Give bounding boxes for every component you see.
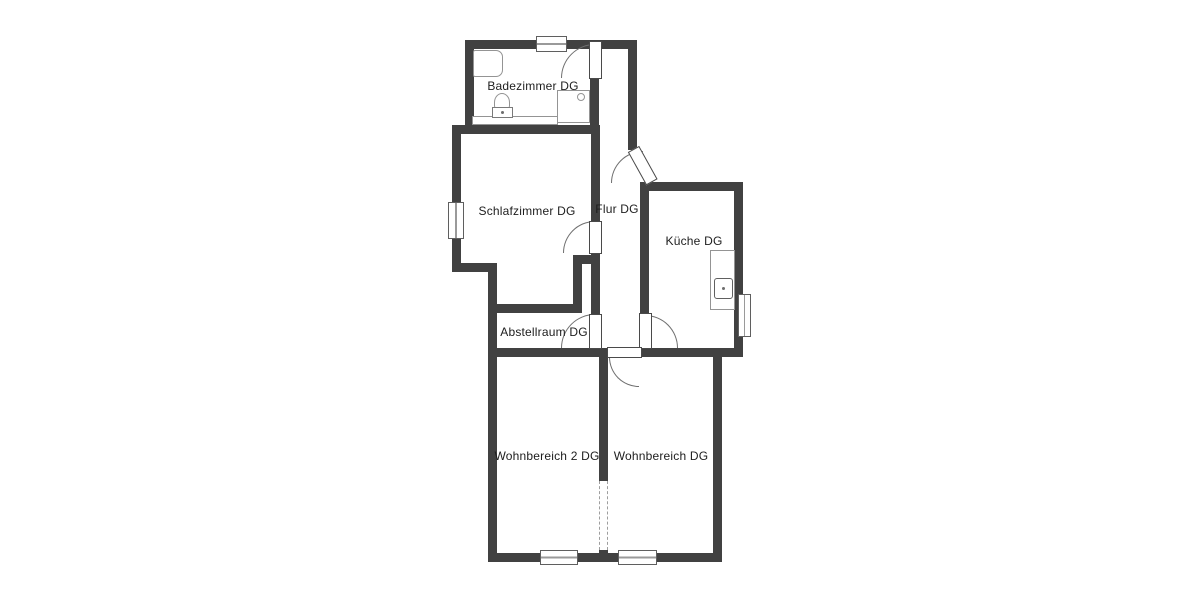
wall-segment	[452, 125, 600, 134]
door-leaf	[639, 313, 652, 349]
dashed-wall-opening	[599, 481, 608, 550]
bathroom-counter	[472, 116, 558, 125]
door-leaf	[589, 314, 602, 349]
door-leaf	[589, 221, 602, 254]
door-swing-arc	[609, 357, 639, 387]
wall-segment	[452, 125, 461, 272]
shower-head	[577, 93, 585, 101]
room-label-flur: Flur DG	[595, 202, 638, 216]
wall-segment	[640, 182, 649, 313]
wall-segment	[488, 348, 608, 357]
floorplan: Badezimmer DG Schlafzimmer DG Flur DG Kü…	[0, 0, 1200, 600]
window	[738, 294, 751, 337]
wall-segment	[640, 182, 743, 191]
kitchen-sink-drain	[722, 287, 725, 290]
door-leaf	[589, 41, 602, 79]
wall-segment	[488, 553, 722, 562]
window	[448, 202, 464, 239]
shower-tray	[557, 90, 590, 123]
wall-segment	[488, 304, 582, 313]
window	[536, 36, 567, 52]
room-label-wohnbereich2: Wohnbereich 2 DG	[494, 449, 599, 463]
wall-segment	[713, 348, 722, 562]
window	[618, 550, 657, 565]
bathtub	[473, 50, 503, 77]
room-label-wohnbereich: Wohnbereich DG	[614, 449, 709, 463]
room-label-kueche: Küche DG	[666, 234, 723, 248]
wall-segment	[599, 348, 608, 483]
wall-segment	[628, 40, 637, 150]
window	[540, 550, 578, 565]
room-label-abstellraum: Abstellraum DG	[500, 325, 588, 339]
wall-segment	[640, 348, 743, 357]
room-label-badezimmer: Badezimmer DG	[487, 79, 578, 93]
door-leaf	[607, 347, 642, 358]
toilet-flush-dot	[501, 111, 504, 114]
room-label-schlafzimmer: Schlafzimmer DG	[478, 204, 575, 218]
